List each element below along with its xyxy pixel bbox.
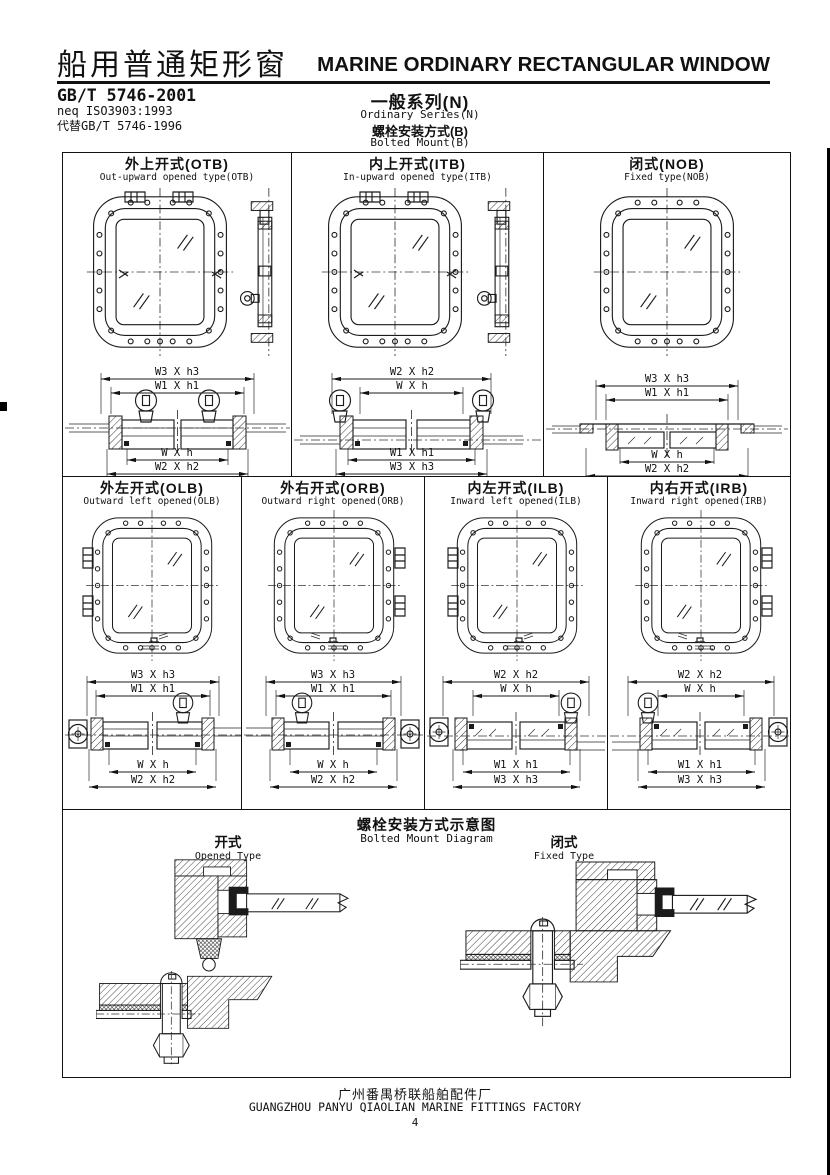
dimension-label: W1 X h1 <box>494 759 538 771</box>
opened-type-section-drawing <box>96 858 356 1066</box>
itb-drawing: W2 X h2 W X h W1 X h1 <box>292 186 544 476</box>
dimension-label: W1 X h1 <box>678 759 722 771</box>
cell-otb: 外上开式(OTB) Out-upward opened type(OTB) W3… <box>63 153 292 476</box>
dimension-label: W X h <box>684 683 716 695</box>
window-front-view <box>594 188 741 356</box>
mount-title-english: Bolted Mount(B) <box>260 136 580 149</box>
cell-title-cn: 外上开式(OTB) <box>63 156 291 172</box>
dimension-label: W2 X h2 <box>494 669 538 681</box>
cell-title-cn: 内左开式(ILB) <box>425 480 607 496</box>
document-page: 船用普通矩形窗 MARINE ORDINARY RECTANGULAR WIND… <box>0 0 830 1175</box>
dimension-label: W3 X h3 <box>678 774 722 786</box>
dimension-label: W2 X h2 <box>390 366 434 378</box>
cell-title-cn: 外左开式(OLB) <box>63 480 241 496</box>
dimension-label: W X h <box>317 759 349 771</box>
dimension-label: W2 X h2 <box>131 774 175 786</box>
dimension-label: W1 X h1 <box>645 387 689 399</box>
dimension-label: W3 X h3 <box>390 461 434 473</box>
dimension-label: W3 X h3 <box>155 366 199 378</box>
window-front-view <box>87 188 234 356</box>
cell-title-en: Inward right opened(IRB) <box>608 496 790 507</box>
dimension-label: W2 X h2 <box>645 463 689 475</box>
dimension-label: W3 X h3 <box>311 669 355 681</box>
dimension-label: W X h <box>651 449 683 461</box>
window-front-view <box>322 188 469 356</box>
drawing-table: 外上开式(OTB) Out-upward opened type(OTB) W3… <box>62 152 791 1078</box>
standard-replaces: 代替GB/T 5746-1996 <box>57 117 182 134</box>
cell-title-cn: 内右开式(IRB) <box>608 480 790 496</box>
cell-title-cn: 内上开式(ITB) <box>292 156 543 172</box>
dimension-label: W3 X h3 <box>494 774 538 786</box>
olb-drawing: W3 X h3 W1 X h1 <box>63 510 242 809</box>
cell-title-en: Out-upward opened type(OTB) <box>63 172 291 183</box>
nob-drawing: W3 X h3 W1 X h1 W X h <box>544 186 790 476</box>
page-number: 4 <box>0 1116 830 1129</box>
dimension-label: W2 X h2 <box>311 774 355 786</box>
table-row-3: 螺栓安装方式示意图 Bolted Mount Diagram 开式 Opened… <box>63 810 790 1073</box>
fixed-type-label: 闭式 Fixed Type <box>504 831 624 862</box>
fixed-type-section-drawing <box>460 860 760 1037</box>
page-title-chinese: 船用普通矩形窗 <box>57 40 288 84</box>
dimension-label: W1 X h1 <box>131 683 175 695</box>
dimension-label: W1 X h1 <box>155 380 199 392</box>
dimension-label: W1 X h1 <box>311 683 355 695</box>
dimension-label: W X h <box>161 447 193 459</box>
series-title-english: Ordinary Series(N) <box>260 108 580 121</box>
scan-blot-artifact <box>0 402 7 411</box>
dimension-label: W1 X h1 <box>390 447 434 459</box>
dimension-label: W2 X h2 <box>678 669 722 681</box>
cell-title-en: Fixed type(NOB) <box>544 172 790 183</box>
cell-nob: 闭式(NOB) Fixed type(NOB) W3 X h3 W1 X h1 <box>544 153 790 476</box>
cell-orb: 外右开式(ORB) Outward right opened(ORB) W3 X… <box>242 477 425 809</box>
cell-title-cn: 闭式(NOB) <box>544 156 790 172</box>
orb-drawing: W3 X h3 W1 X h1 <box>242 510 425 809</box>
dimension-label: W3 X h3 <box>131 669 175 681</box>
cell-title-en: In-upward opened type(ITB) <box>292 172 543 183</box>
cell-itb: 内上开式(ITB) In-upward opened type(ITB) W2 … <box>292 153 544 476</box>
standard-neq: neq ISO3903:1993 <box>57 104 173 118</box>
dimension-label: W2 X h2 <box>155 461 199 473</box>
page-title-english: MARINE ORDINARY RECTANGULAR WINDOW <box>317 53 770 77</box>
factory-name-english: GUANGZHOU PANYU QIAOLIAN MARINE FITTINGS… <box>0 1100 830 1114</box>
cell-title-en: Outward left opened(OLB) <box>63 496 241 507</box>
standard-number: GB/T 5746-2001 <box>57 86 196 105</box>
dimension-label: W X h <box>500 683 532 695</box>
ilb-drawing: W2 X h2 W X h <box>425 510 608 809</box>
table-row-1: 外上开式(OTB) Out-upward opened type(OTB) W3… <box>63 153 790 477</box>
dimension-label: W3 X h3 <box>645 373 689 385</box>
side-section-view <box>241 188 273 356</box>
title-rule <box>57 81 770 84</box>
side-section-view <box>478 188 510 356</box>
cell-olb: 外左开式(OLB) Outward left opened(OLB) W3 X … <box>63 477 242 809</box>
cell-title-en: Outward right opened(ORB) <box>242 496 424 507</box>
irb-drawing: W2 X h2 W X h <box>608 510 790 809</box>
cell-irb: 内右开式(IRB) Inward right opened(IRB) W2 X … <box>608 477 790 809</box>
cell-title-cn: 外右开式(ORB) <box>242 480 424 496</box>
dimension-label: W X h <box>137 759 169 771</box>
cell-ilb: 内左开式(ILB) Inward left opened(ILB) W2 X h… <box>425 477 608 809</box>
table-row-2: 外左开式(OLB) Outward left opened(OLB) W3 X … <box>63 477 790 810</box>
cell-title-en: Inward left opened(ILB) <box>425 496 607 507</box>
otb-drawing: W3 X h3 W1 X h1 W X h <box>63 186 292 476</box>
dimension-label: W X h <box>396 380 428 392</box>
